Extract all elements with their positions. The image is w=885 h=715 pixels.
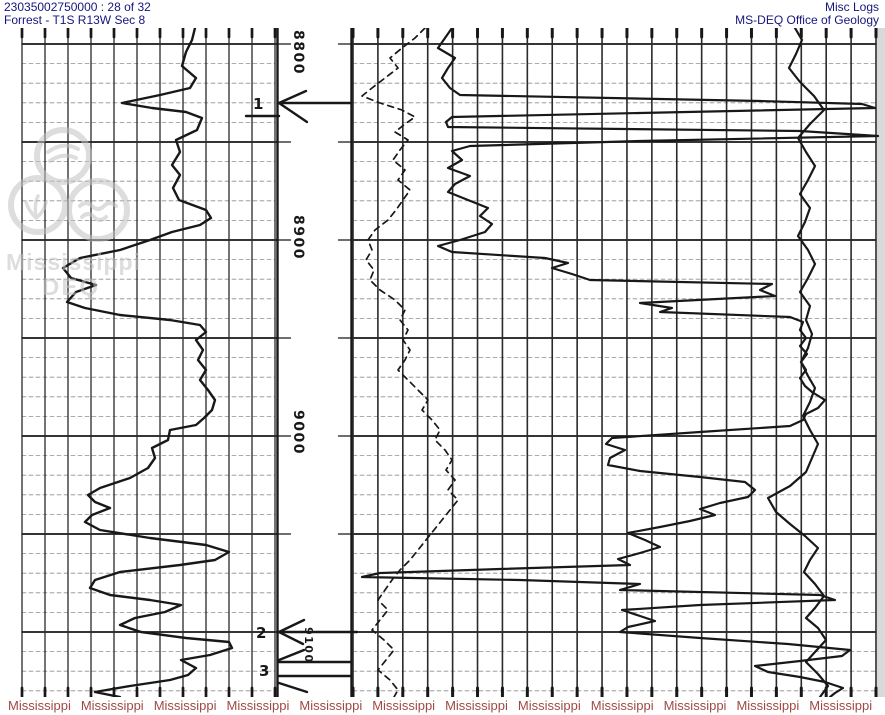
footer-watermark-text: Mississippi (664, 697, 727, 715)
footer-watermark-text: Mississippi (445, 697, 508, 715)
well-log-scan: 8800890090009100123 Mississippi DEQ (0, 28, 885, 697)
marker-label-3: 3 (259, 662, 269, 680)
depth-label-9000: 9000 (290, 410, 306, 455)
footer-watermark-text: Mississippi (154, 697, 217, 715)
marker-label-2: 2 (256, 624, 266, 642)
marker-label-1: 1 (253, 95, 263, 113)
footer-watermark-text: Mississippi (518, 697, 581, 715)
footer-watermark-row: MississippiMississippiMississippiMississ… (8, 697, 885, 715)
footer-watermark-text: Mississippi (372, 697, 435, 715)
footer-watermark-text: Mississippi (591, 697, 654, 715)
footer-watermark-text: Mississippi (81, 697, 144, 715)
footer-watermark-text: Mississippi (227, 697, 290, 715)
depth-label-8900: 8900 (290, 215, 306, 260)
header-right: Misc Logs MS-DEQ Office of Geology (735, 1, 879, 27)
footer-watermark-text: Mississippi (736, 697, 799, 715)
log-grid-and-curves: 8800890090009100123 (0, 28, 885, 697)
footer-watermark-text: Mississippi (299, 697, 362, 715)
header-left: 23035002750000 : 28 of 32 Forrest - T1S … (4, 1, 151, 27)
footer-watermark-text: Mississippi (809, 697, 872, 715)
depth-label-8800: 8800 (290, 30, 306, 75)
scan-edge-strip (877, 28, 885, 697)
footer-watermark-text: Mississippi (8, 697, 71, 715)
shallow-resistivity-curve (362, 28, 458, 697)
well-location: Forrest - T1S R13W Sec 8 (4, 14, 151, 27)
agency-label: MS-DEQ Office of Geology (735, 14, 879, 27)
